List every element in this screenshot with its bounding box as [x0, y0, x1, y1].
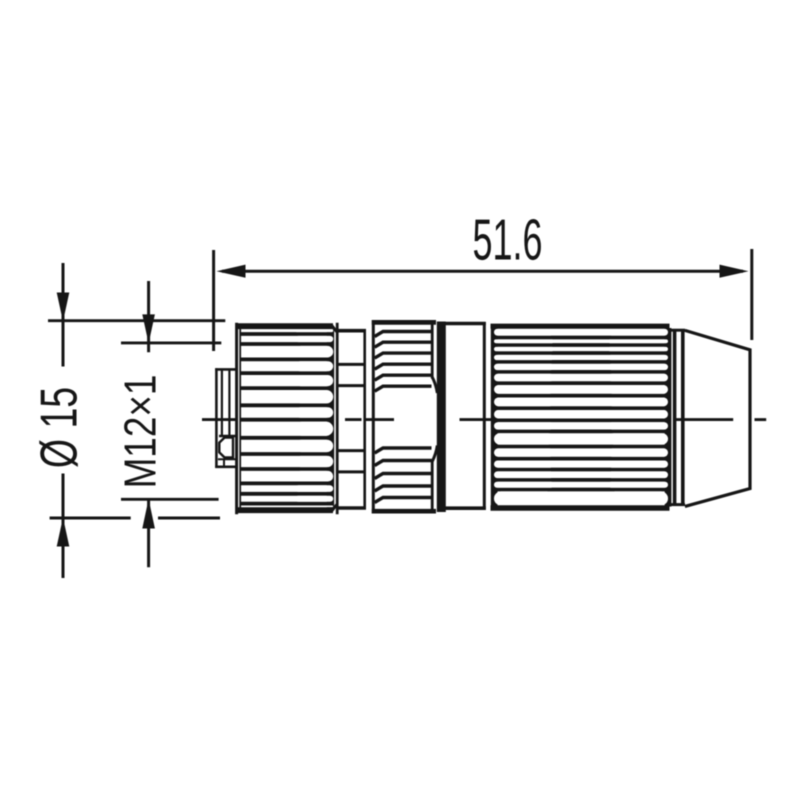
svg-text:51.6: 51.6 [473, 208, 543, 273]
svg-text:M12×1: M12×1 [115, 375, 166, 489]
svg-text:Ø 15: Ø 15 [31, 387, 89, 468]
